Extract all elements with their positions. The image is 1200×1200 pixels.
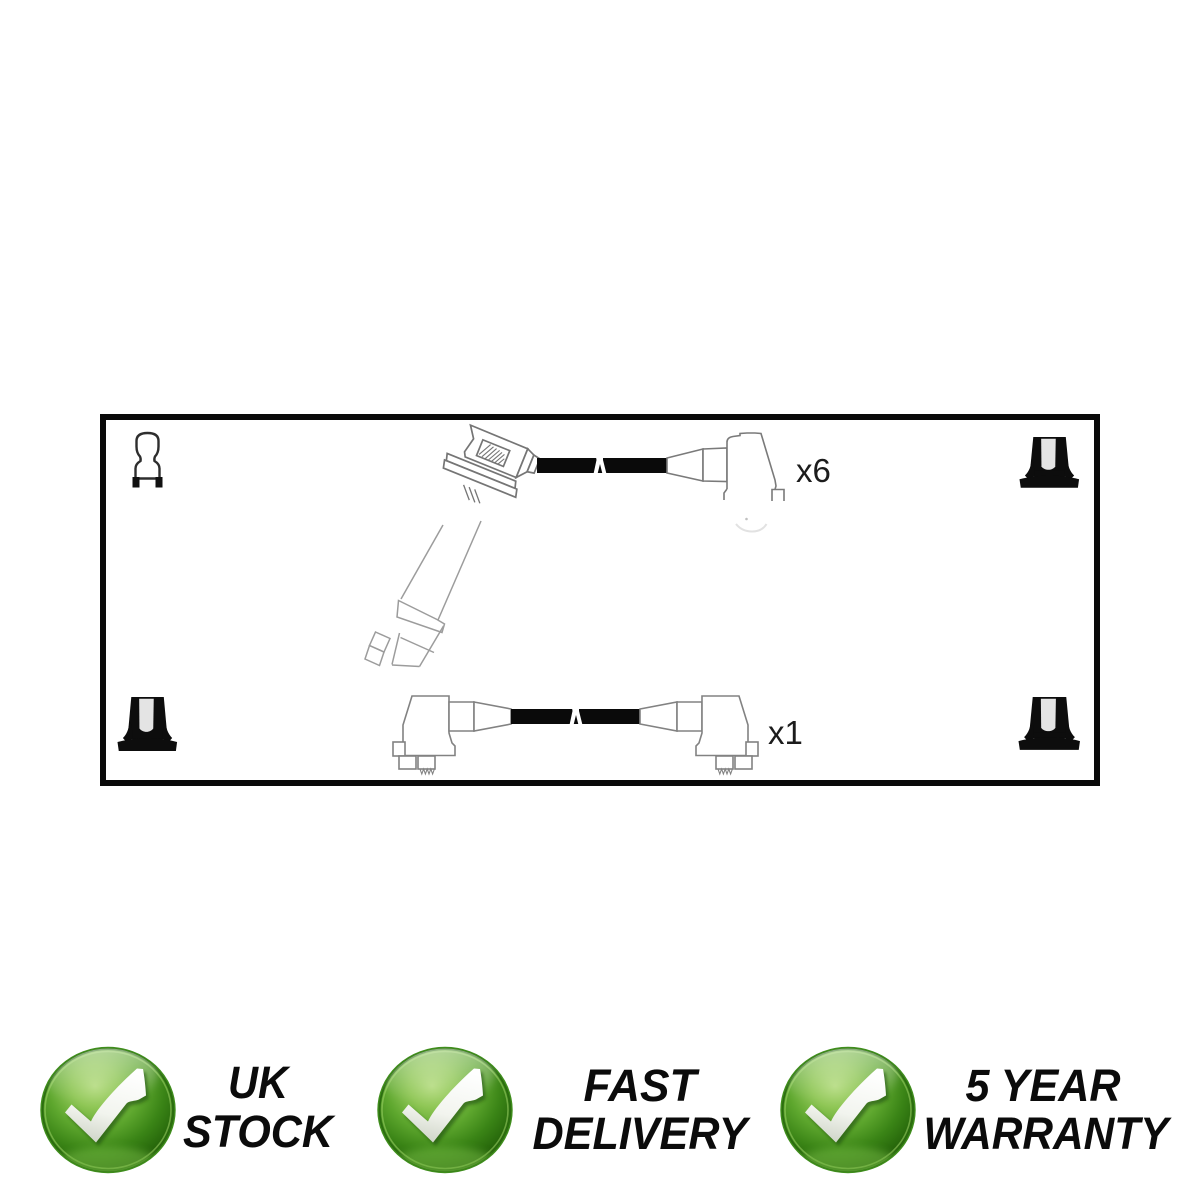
svg-text:x6: x6 [796,452,831,489]
svg-text:x1: x1 [768,714,803,751]
svg-text:WARRANTY: WARRANTY [924,1108,1173,1159]
svg-text:FAST: FAST [584,1060,700,1111]
svg-text:DELIVERY: DELIVERY [533,1108,752,1159]
svg-text:5 YEAR: 5 YEAR [966,1060,1121,1111]
svg-text:STOCK: STOCK [183,1106,336,1157]
svg-text:UK: UK [228,1057,291,1108]
